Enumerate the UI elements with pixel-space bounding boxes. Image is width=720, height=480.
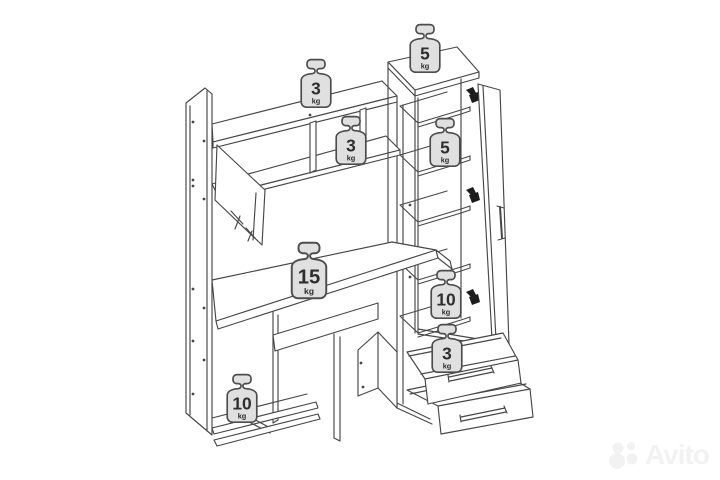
- left-side-panel: [186, 88, 212, 435]
- weight-badge-wardrobe-top: 5kg: [410, 25, 440, 73]
- svg-text:kg: kg: [442, 307, 451, 316]
- avito-logo-icon: [608, 439, 642, 471]
- svg-text:kg: kg: [347, 153, 356, 162]
- svg-text:10: 10: [436, 289, 455, 309]
- svg-text:10: 10: [232, 393, 251, 413]
- hinge-icon: [466, 187, 480, 203]
- svg-text:kg: kg: [312, 96, 321, 105]
- svg-text:kg: kg: [238, 411, 247, 420]
- drawer-pedestal: [358, 332, 432, 424]
- desk-top: [212, 242, 452, 329]
- svg-text:kg: kg: [443, 361, 452, 370]
- wardrobe-door: [478, 84, 509, 344]
- weight-badge-wardrobe-lower-shelf: 10kg: [431, 271, 461, 319]
- svg-text:15: 15: [298, 266, 321, 288]
- svg-text:kg: kg: [421, 61, 430, 70]
- hinge-icon: [466, 289, 480, 305]
- svg-text:5: 5: [420, 43, 430, 63]
- weight-badge-hutch-top: 3kg: [301, 60, 331, 108]
- svg-text:3: 3: [311, 78, 321, 98]
- avito-watermark-text: Avito: [645, 441, 709, 469]
- furniture-diagram-svg: 3kg 5kg 3kg 5kg 15kg 10kg 3kg 10kg: [0, 0, 720, 480]
- weight-badge-wardrobe-upper-shelf: 5kg: [430, 119, 460, 167]
- weight-badge-desk-top: 15kg: [292, 243, 327, 299]
- avito-watermark: Avito: [608, 439, 709, 471]
- modesty-panel: [273, 303, 378, 351]
- svg-text:3: 3: [346, 135, 356, 155]
- svg-text:5: 5: [440, 137, 450, 157]
- hutch-open-door: [215, 145, 265, 245]
- weight-badge-bottom-left-shelf: 10kg: [227, 375, 257, 423]
- svg-text:kg: kg: [304, 286, 314, 296]
- svg-text:kg: kg: [441, 155, 450, 164]
- svg-text:3: 3: [442, 343, 452, 363]
- furniture-load-diagram: 3kg 5kg 3kg 5kg 15kg 10kg 3kg 10kg: [0, 0, 720, 480]
